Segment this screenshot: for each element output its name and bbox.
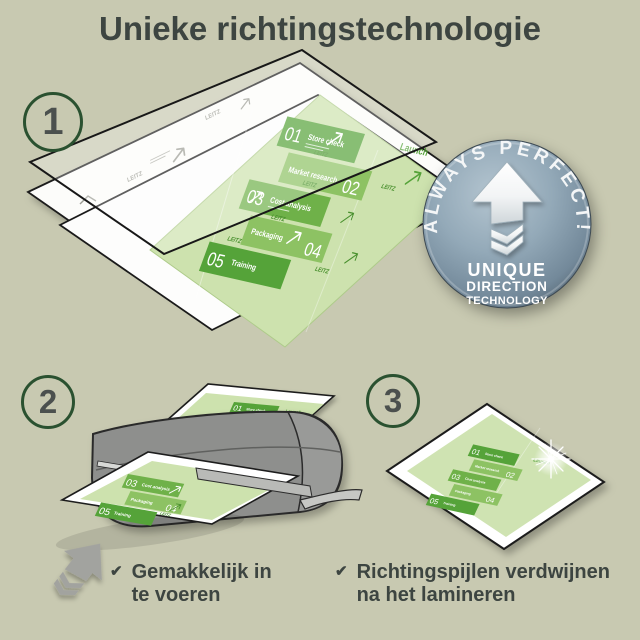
badge-line2: DIRECTION <box>466 279 547 294</box>
checklist-item-arrows-disappear: ✔ Richtingspijlen verdwijnen na het lami… <box>335 561 610 606</box>
checklist-text: Gemakkelijk in te voeren <box>132 561 272 606</box>
badge-line3: TECHNOLOGY <box>466 295 548 307</box>
step3-circle: 3 <box>366 374 420 428</box>
infographic: LEITZ LEITZ 01 Store check <box>0 0 640 640</box>
checklist-line: na het lamineren <box>357 584 610 607</box>
step2-circle: 2 <box>21 375 75 429</box>
step3-illustration: 01 Store check Market research 02 03 Cos… <box>387 404 604 549</box>
page-title: Unieke richtingstechnologie <box>0 10 640 48</box>
checklist-line: Gemakkelijk in <box>132 561 272 584</box>
checklist-item-easy-feed: ✔ Gemakkelijk in te voeren <box>110 561 272 606</box>
step1-number: 1 <box>42 101 63 144</box>
step1-circle: 1 <box>23 92 83 152</box>
badge-line1: UNIQUE <box>467 260 546 280</box>
illustrations-canvas: LEITZ LEITZ 01 Store check <box>0 0 640 640</box>
always-perfect-badge: ALWAYS PERFECT! UNIQUE DIRECTION TECHNOL… <box>421 138 597 314</box>
step2-number: 2 <box>39 383 57 421</box>
checklist-text: Richtingspijlen verdwijnen na het lamine… <box>357 561 610 606</box>
checklist-line: Richtingspijlen verdwijnen <box>357 561 610 584</box>
step1-illustration: LEITZ LEITZ 01 Store check <box>28 50 470 347</box>
checkmark-icon: ✔ <box>110 561 123 606</box>
step3-number: 3 <box>384 382 402 420</box>
checkmark-icon: ✔ <box>335 561 348 606</box>
checklist-line: te voeren <box>132 584 272 607</box>
